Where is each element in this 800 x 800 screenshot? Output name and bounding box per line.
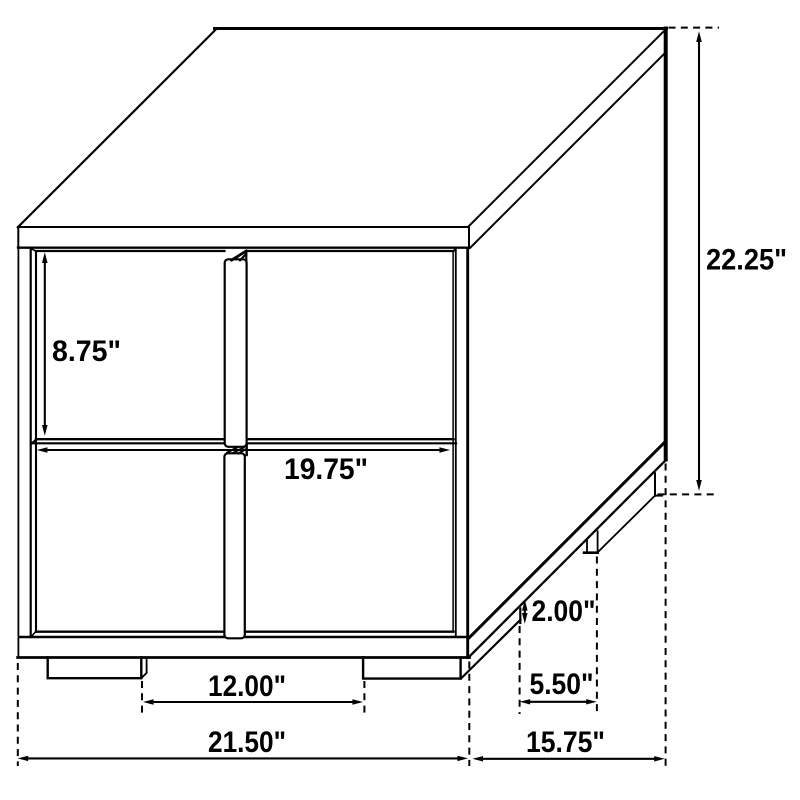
svg-text:8.75": 8.75" [52, 335, 121, 368]
svg-text:2.00": 2.00" [532, 595, 596, 628]
svg-text:21.50": 21.50" [208, 726, 286, 759]
svg-text:5.50": 5.50" [530, 668, 594, 701]
svg-text:19.75": 19.75" [284, 453, 368, 486]
svg-text:22.25": 22.25" [706, 244, 787, 277]
svg-text:12.00": 12.00" [208, 670, 286, 703]
svg-text:15.75": 15.75" [526, 726, 605, 759]
